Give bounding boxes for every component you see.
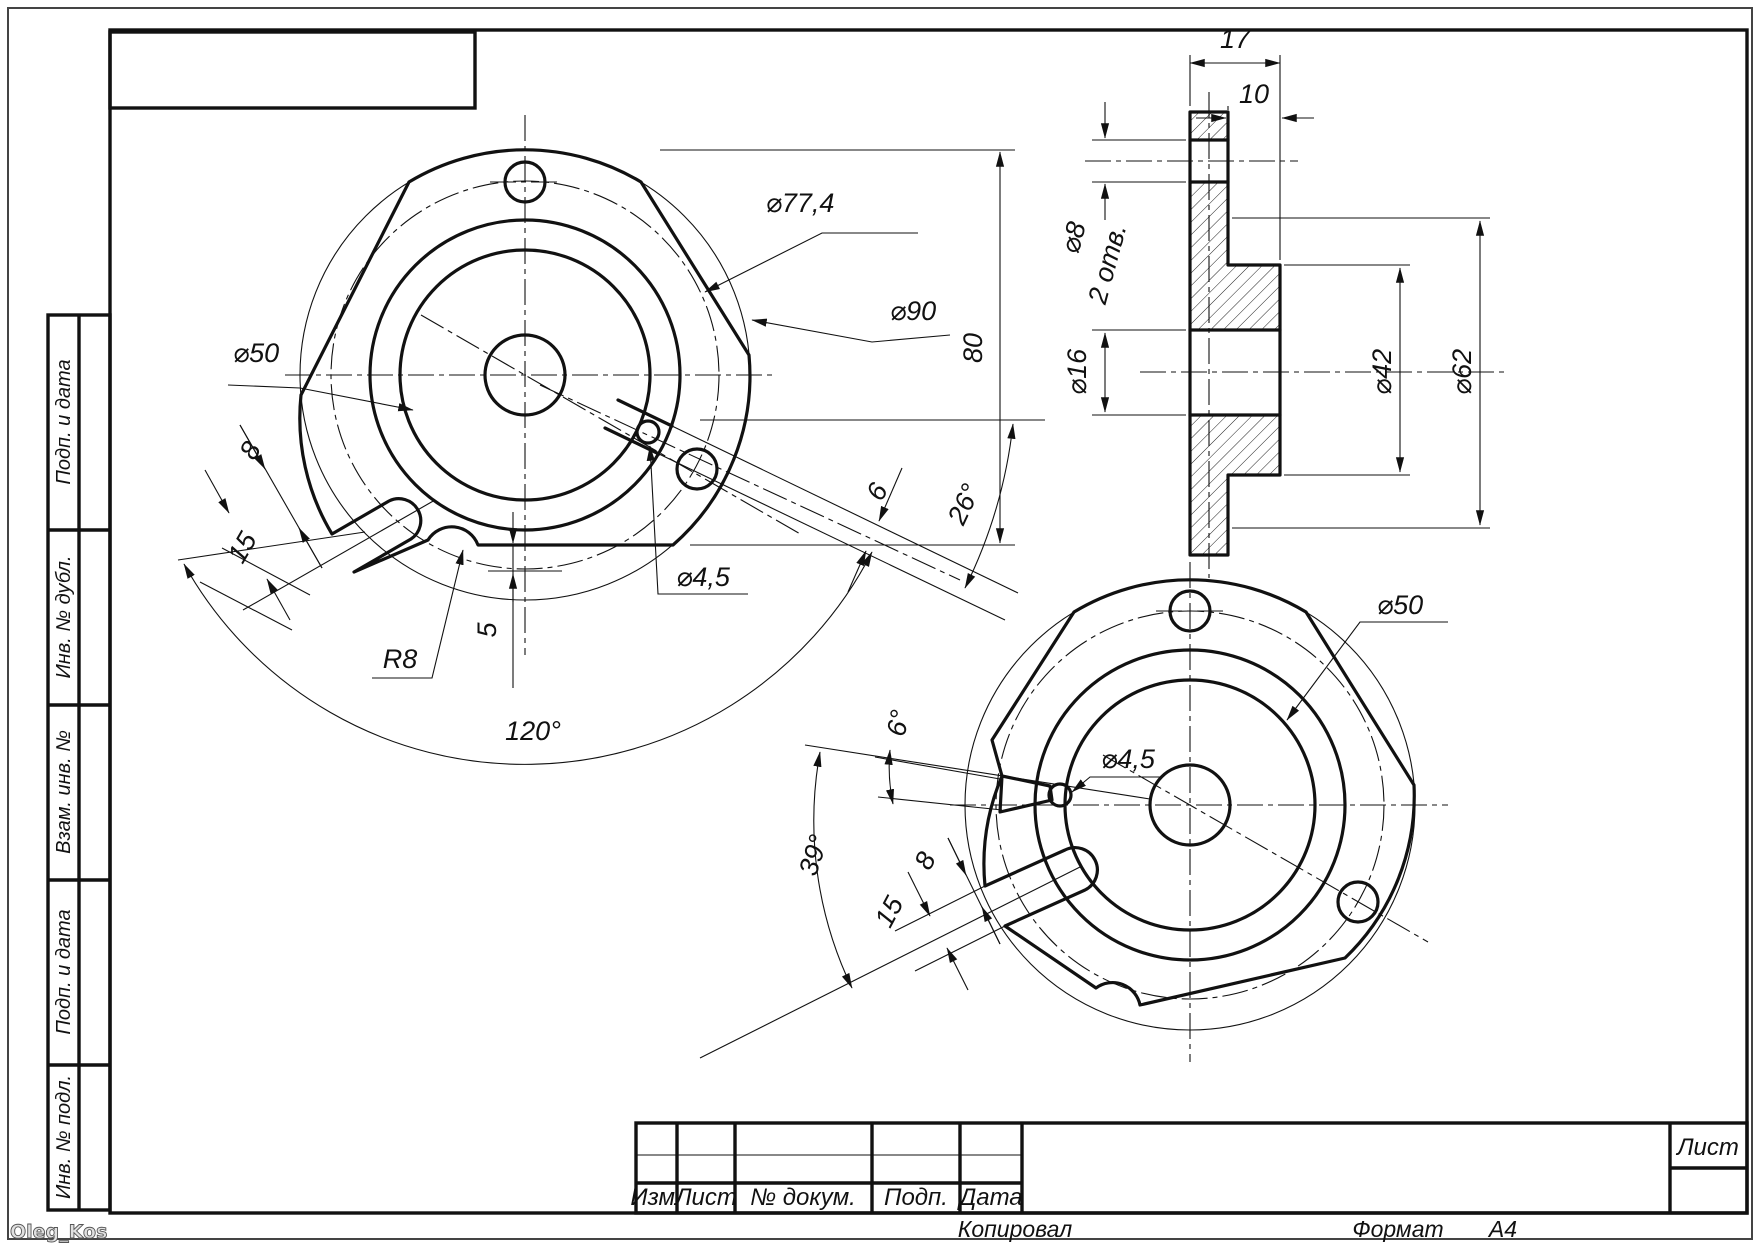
dim-aux-39deg: 39° [793, 831, 834, 879]
dim-sec-d62: ⌀62 [1447, 349, 1477, 395]
dim-front-d90: ⌀90 [890, 296, 936, 326]
dim-aux-slot8: 8 [908, 847, 942, 874]
dim-front-120deg: 120° [505, 716, 561, 746]
dim-front-6: 6 [860, 477, 894, 505]
dim-front-slot8: 8 [233, 436, 266, 464]
top-left-stamp-box [110, 32, 475, 108]
dim-sec-d42: ⌀42 [1367, 349, 1397, 395]
dim-front-d77: ⌀77,4 [766, 188, 835, 218]
tb-col-izm: Изм. [630, 1184, 681, 1211]
title-block: Изм. Лист № докум. Подп. Дата Лист [630, 1123, 1747, 1213]
dim-sec-d8: ⌀8 [1055, 219, 1092, 257]
tb-col-podp: Подп. [884, 1184, 948, 1211]
dim-front-26deg: 26° [941, 479, 986, 530]
dim-aux-d50: ⌀50 [1377, 590, 1423, 620]
dim-front-r8: R8 [383, 644, 418, 674]
dim-front-d50: ⌀50 [233, 338, 279, 368]
stamp-inv-dubl: Инв. № дубл. [53, 556, 75, 679]
dim-aux-6deg: 6° [881, 707, 916, 739]
aux-view: ⌀50 ⌀4,5 6° 39° 8 15 [700, 562, 1448, 1062]
tb-col-doc: № докум. [750, 1184, 856, 1211]
sheet-frame [8, 8, 1752, 1239]
tb-sheet-label: Лист [1675, 1134, 1739, 1161]
tb-col-list: Лист [673, 1184, 737, 1211]
stamp-vzam-inv: Взам. инв. № [53, 730, 75, 854]
watermark: Oleg_Kos [10, 1221, 107, 1243]
left-stamps: Подп. и дата Инв. № дубл. Взам. инв. № П… [48, 315, 110, 1210]
section-view: 17 10 ⌀8 2 отв. ⌀16 ⌀42 ⌀62 [1055, 24, 1505, 578]
tb-col-data: Дата [956, 1184, 1022, 1211]
dim-aux-d45: ⌀4,5 [1101, 744, 1156, 774]
dim-front-slot15: 15 [222, 526, 263, 568]
stamp-inv-podl: Инв. № подл. [53, 1075, 75, 1199]
stamp-podp-data-1: Подп. и дата [53, 359, 75, 484]
dim-front-80: 80 [958, 333, 988, 363]
dim-sec-10: 10 [1239, 79, 1269, 109]
footer-kopiroval: Копировал [958, 1216, 1072, 1242]
dim-aux-slot15: 15 [869, 891, 910, 932]
dim-front-d45: ⌀4,5 [676, 562, 731, 592]
dim-sec-17: 17 [1220, 24, 1251, 54]
dim-front-5: 5 [472, 622, 502, 638]
footer-format-value: А4 [1487, 1216, 1517, 1242]
dim-sec-d16: ⌀16 [1062, 348, 1092, 395]
footer-format-label: Формат [1352, 1216, 1443, 1242]
stamp-podp-data-2: Подп. и дата [53, 909, 75, 1034]
drawing-canvas: Подп. и дата Инв. № дубл. Взам. инв. № П… [0, 0, 1760, 1247]
drawing-sheet: Подп. и дата Инв. № дубл. Взам. инв. № П… [0, 0, 1760, 1247]
front-view: 80 26° 6 120° 8 15 5 R8 ⌀50 [178, 115, 1045, 764]
